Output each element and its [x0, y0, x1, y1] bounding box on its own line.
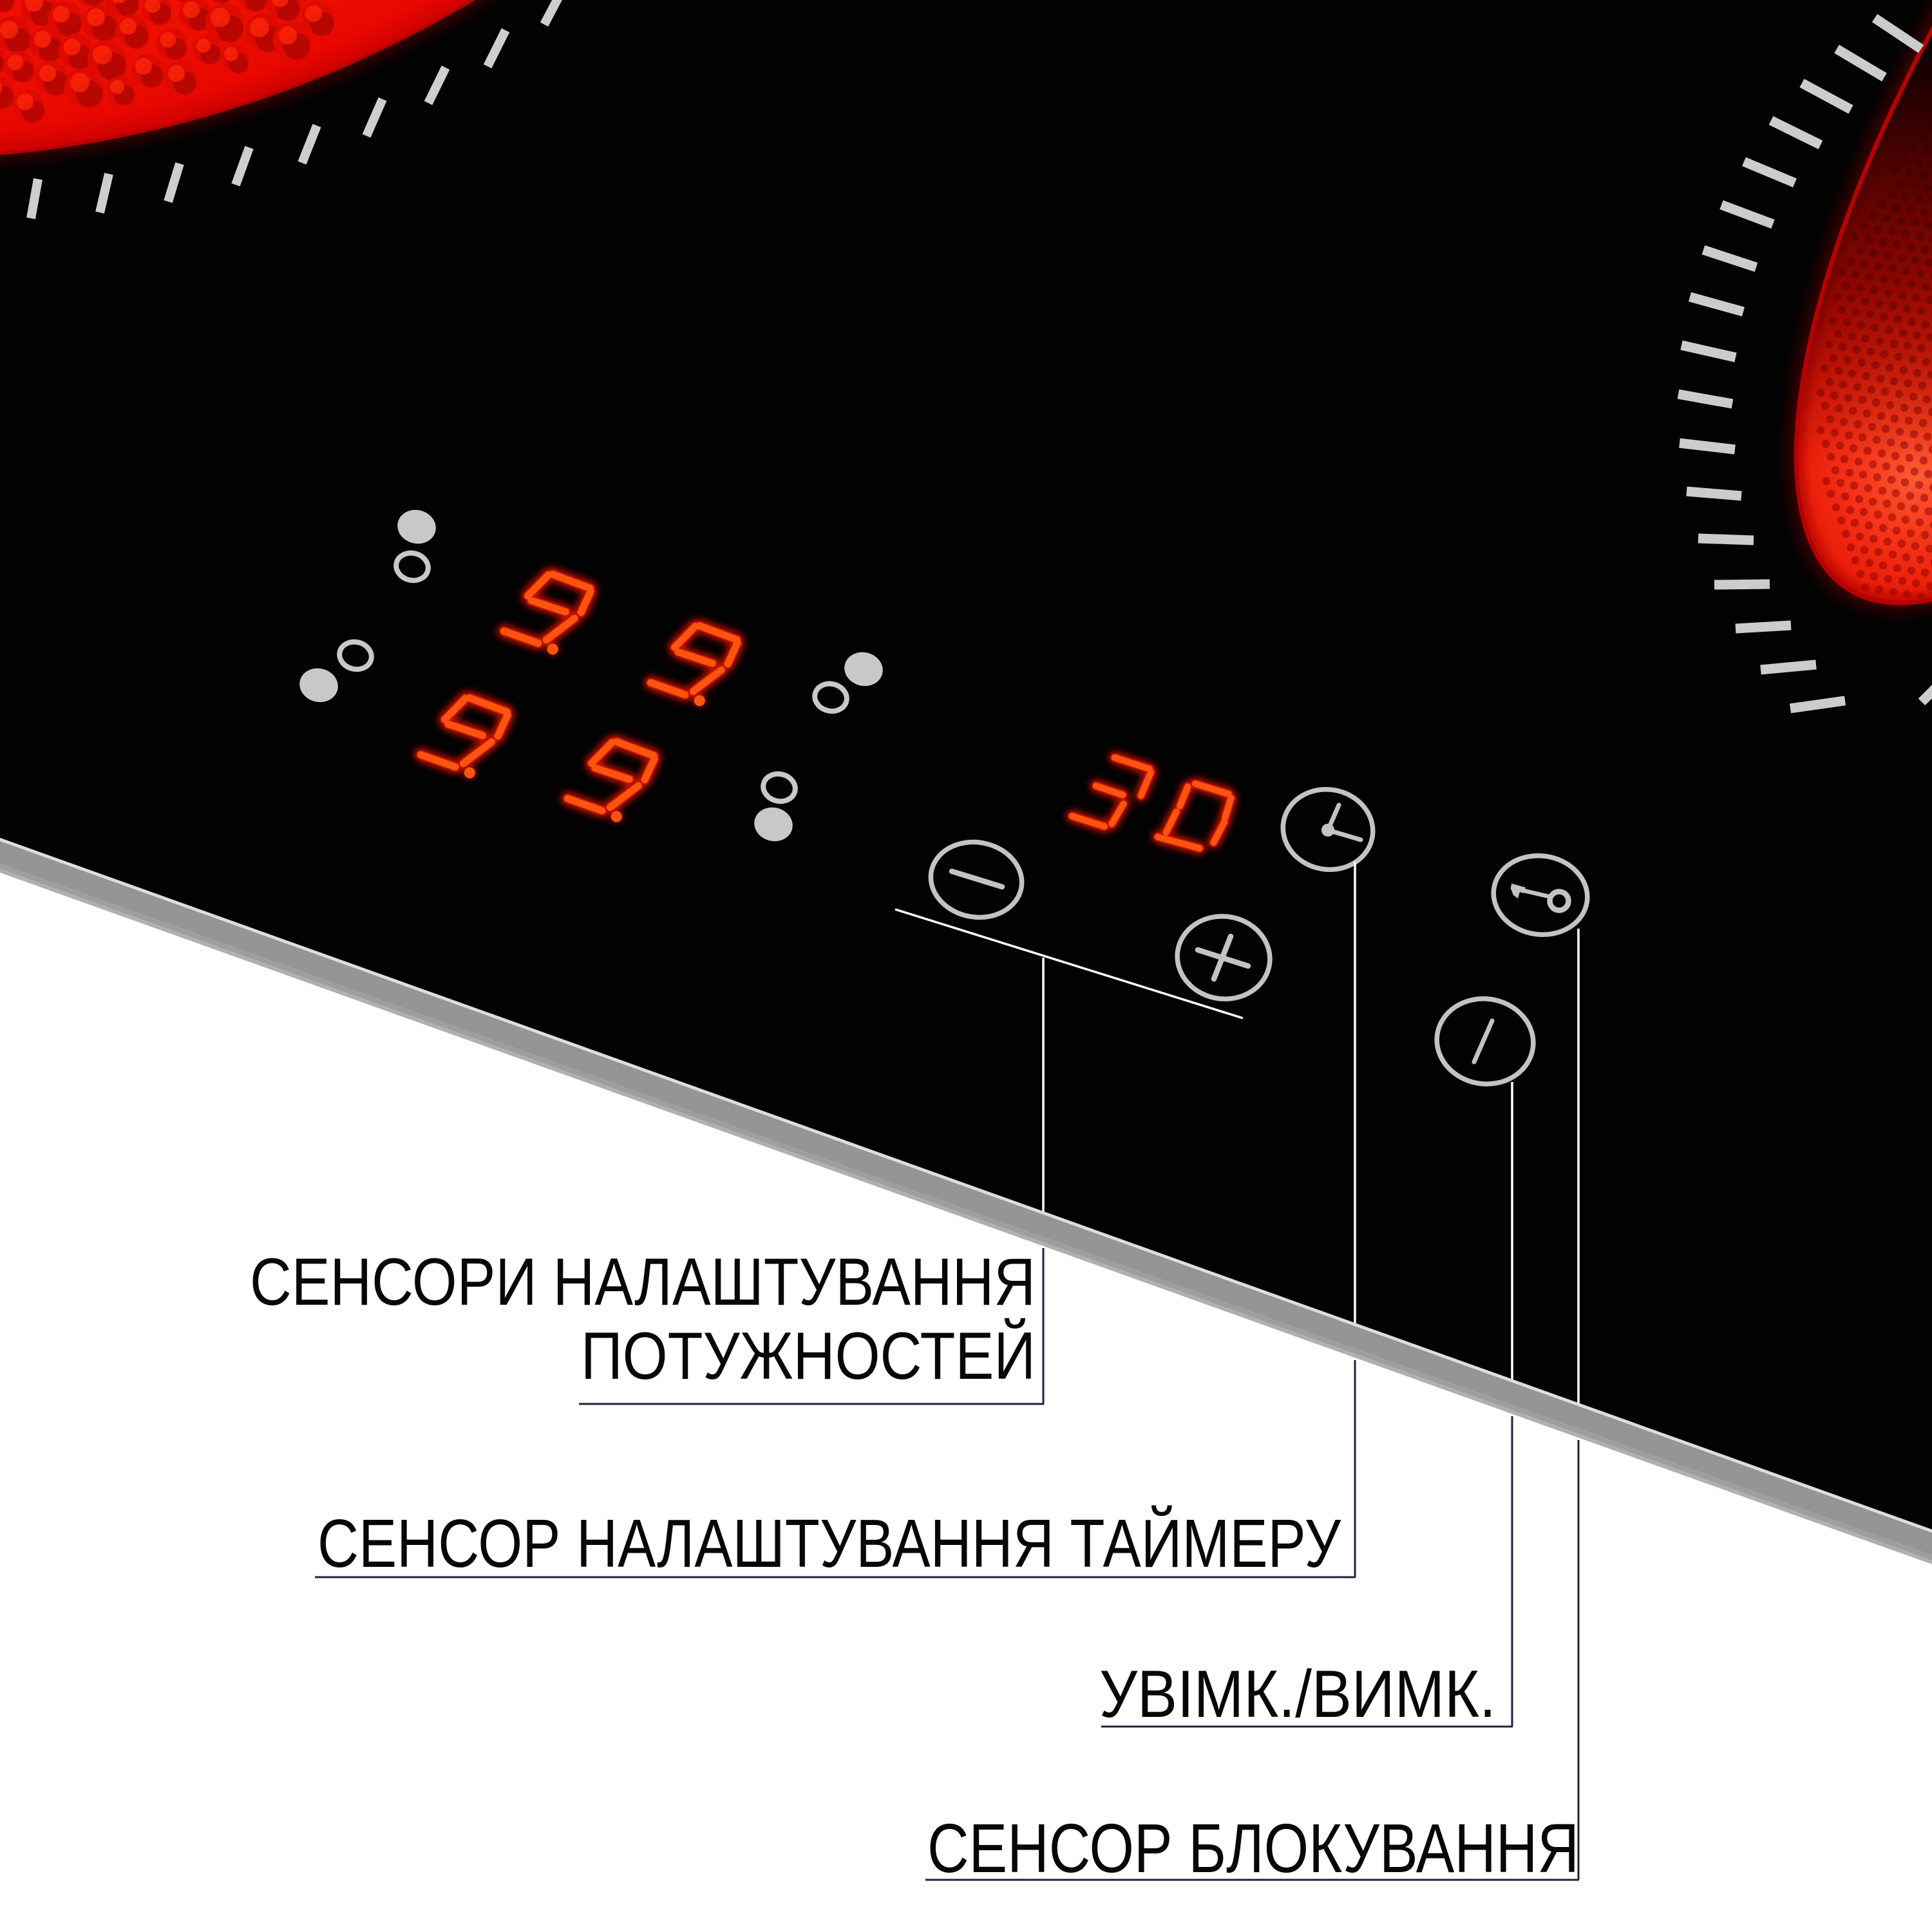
svg-text:ПОТУЖНОСТЕЙ: ПОТУЖНОСТЕЙ [581, 1318, 1036, 1394]
svg-text:УВІМК./ВИМК.: УВІМК./ВИМК. [1099, 1657, 1496, 1732]
svg-text:СЕНСОРИ НАЛАШТУВАННЯ: СЕНСОРИ НАЛАШТУВАННЯ [250, 1245, 1036, 1320]
svg-text:СЕНСОР НАЛАШТУВАННЯ ТАЙМЕРУ: СЕНСОР НАЛАШТУВАННЯ ТАЙМЕРУ [317, 1505, 1341, 1582]
svg-text:СЕНСОР БЛОКУВАННЯ: СЕНСОР БЛОКУВАННЯ [927, 1809, 1579, 1887]
